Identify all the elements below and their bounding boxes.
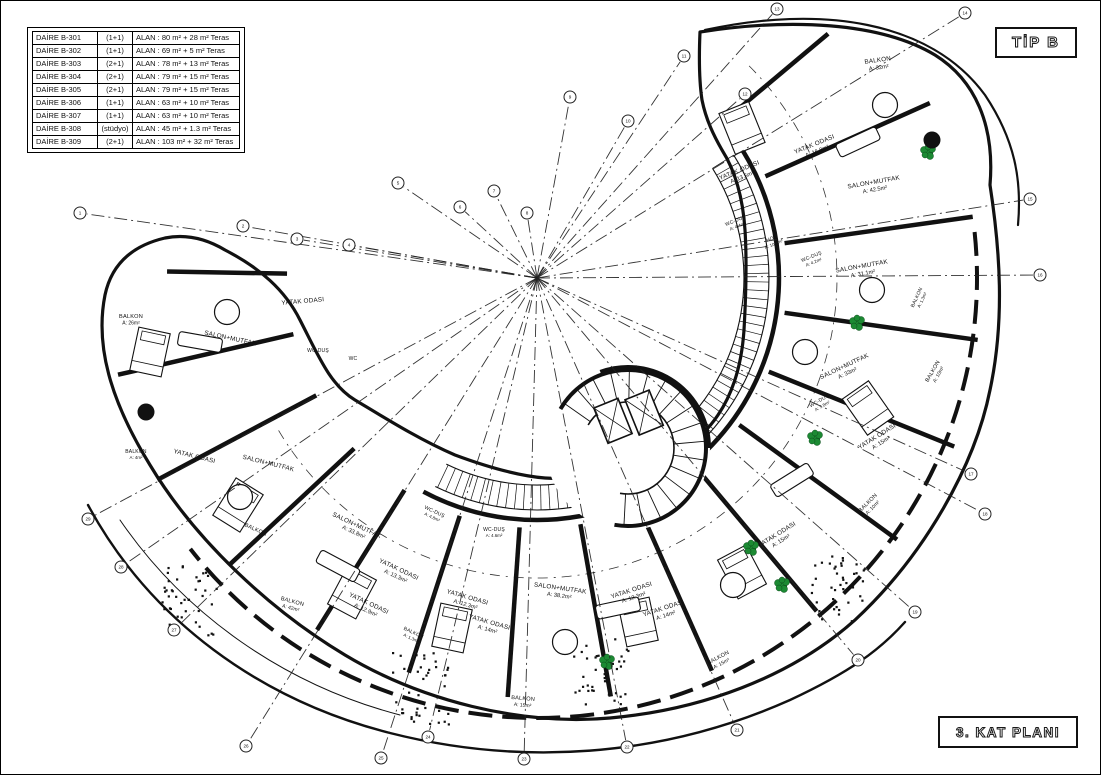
svg-text:A: 4m²: A: 4m² — [130, 455, 143, 460]
axis-marker-label: 16 — [1037, 273, 1043, 278]
table-symbol — [721, 573, 746, 598]
axis-marker-label: 1 — [79, 211, 82, 216]
unit-table-row: DAİRE B-308(stüdyo)ALAN : 45 m² + 1.3 m²… — [33, 123, 240, 136]
table-symbol — [860, 278, 885, 303]
unit-table-cell: (2+1) — [98, 84, 133, 97]
column-dot — [924, 132, 941, 149]
unit-table-cell: DAİRE B-308 — [33, 123, 98, 136]
unit-table-cell: ALAN : 63 m² + 10 m² Teras — [133, 97, 240, 110]
axis-marker-label: 19 — [912, 610, 918, 615]
room-label: BALKONA: 26m² — [119, 314, 143, 327]
axis-marker-label: 4 — [348, 243, 351, 248]
table-symbol — [553, 630, 578, 655]
unit-table-cell: (1+1) — [98, 97, 133, 110]
unit-table-cell: DAİRE B-303 — [33, 58, 98, 71]
unit-table-cell: DAİRE B-304 — [33, 71, 98, 84]
axis-marker-label: 29 — [85, 517, 91, 522]
svg-text:A: 26m²: A: 26m² — [122, 321, 140, 327]
axis-marker-label: 3 — [296, 237, 299, 242]
floor-plan-sheet: BALKONA: 32m²YATAK ODASIA: 13.5m²YATAK O… — [0, 0, 1101, 775]
axis-marker-label: 2 — [242, 224, 245, 229]
unit-table-cell: (2+1) — [98, 71, 133, 84]
room-label: WC-DUŞA: 4.6m² — [483, 527, 505, 538]
table-symbol — [793, 340, 818, 365]
axis-marker-label: 25 — [378, 756, 384, 761]
unit-table-cell: DAİRE B-301 — [33, 32, 98, 45]
unit-table-cell: ALAN : 69 m² + 5 m² Teras — [133, 45, 240, 58]
plan-title-box: 3. KAT PLANI — [938, 716, 1078, 748]
unit-table-cell: DAİRE B-305 — [33, 84, 98, 97]
axis-marker-label: 11 — [682, 54, 687, 59]
axis-marker-label: 17 — [968, 472, 974, 477]
column-dot — [138, 404, 155, 421]
axis-marker-label: 21 — [734, 728, 740, 733]
table-symbol — [228, 485, 253, 510]
svg-text:A: 4.6m²: A: 4.6m² — [486, 533, 503, 538]
axis-line — [537, 127, 624, 278]
axis-marker-label: 27 — [171, 628, 177, 633]
unit-table-cell: (1+1) — [98, 32, 133, 45]
unit-table-row: DAİRE B-302(1+1)ALAN : 69 m² + 5 m² Tera… — [33, 45, 240, 58]
unit-table-cell: (1+1) — [98, 45, 133, 58]
unit-table-row: DAİRE B-309(2+1)ALAN : 103 m² + 32 m² Te… — [33, 136, 240, 149]
axis-marker-label: 5 — [397, 181, 400, 186]
axis-line — [404, 187, 537, 278]
table-symbol — [215, 300, 240, 325]
axis-marker-label: 10 — [625, 119, 631, 124]
room-label: BALKONA: 4m² — [125, 449, 147, 460]
axis-marker-label: 9 — [569, 95, 572, 100]
axis-line — [537, 104, 569, 278]
axis-marker-label: 14 — [962, 11, 968, 16]
axis-marker-label: 18 — [982, 512, 988, 517]
unit-table-cell: ALAN : 78 m² + 13 m² Teras — [133, 58, 240, 71]
axis-marker-label: 12 — [742, 92, 748, 97]
table-symbol — [873, 93, 898, 118]
axis-marker-label: 23 — [521, 757, 527, 762]
axis-marker-label: 26 — [243, 744, 249, 749]
svg-text:BALKON: BALKON — [119, 314, 143, 320]
axis-marker-label: 22 — [624, 745, 630, 750]
svg-text:WC: WC — [349, 356, 358, 362]
unit-table-cell: (stüdyo) — [98, 123, 133, 136]
type-label-box: TİP B — [995, 27, 1077, 58]
unit-table-cell: ALAN : 103 m² + 32 m² Teras — [133, 136, 240, 149]
unit-table-row: DAİRE B-301(1+1)ALAN : 80 m² + 28 m² Ter… — [33, 32, 240, 45]
unit-table-cell: DAİRE B-309 — [33, 136, 98, 149]
unit-table-cell: DAİRE B-306 — [33, 97, 98, 110]
unit-table-cell: ALAN : 63 m² + 10 m² Teras — [133, 110, 240, 123]
axis-marker-label: 20 — [855, 658, 861, 663]
apartment-schedule-table: DAİRE B-301(1+1)ALAN : 80 m² + 28 m² Ter… — [27, 27, 245, 153]
unit-table-row: DAİRE B-307(1+1)ALAN : 63 m² + 10 m² Ter… — [33, 110, 240, 123]
unit-table-cell: (2+1) — [98, 136, 133, 149]
unit-table-row: DAİRE B-306(1+1)ALAN : 63 m² + 10 m² Ter… — [33, 97, 240, 110]
unit-table-cell: ALAN : 79 m² + 15 m² Teras — [133, 71, 240, 84]
unit-table-cell: DAİRE B-302 — [33, 45, 98, 58]
axis-marker-label: 6 — [459, 205, 462, 210]
unit-table-row: DAİRE B-305(2+1)ALAN : 79 m² + 15 m² Ter… — [33, 84, 240, 97]
axis-line — [537, 99, 740, 278]
axis-marker-label: 15 — [1027, 197, 1033, 202]
room-label: WC — [349, 356, 358, 362]
unit-table-cell: (1+1) — [98, 110, 133, 123]
unit-table-row: DAİRE B-303(2+1)ALAN : 78 m² + 13 m² Ter… — [33, 58, 240, 71]
axis-marker-label: 28 — [118, 565, 124, 570]
plan-title: 3. KAT PLANI — [956, 725, 1060, 740]
unit-table-cell: ALAN : 79 m² + 15 m² Teras — [133, 84, 240, 97]
room-label: WC-DUŞ — [307, 348, 329, 354]
central-staircase — [546, 366, 710, 530]
axis-marker-label: 24 — [425, 735, 431, 740]
axis-marker-label: 7 — [493, 189, 496, 194]
unit-table-cell: ALAN : 45 m² + 1.3 m² Teras — [133, 123, 240, 136]
axis-marker-label: 8 — [526, 211, 529, 216]
unit-table-row: DAİRE B-304(2+1)ALAN : 79 m² + 15 m² Ter… — [33, 71, 240, 84]
type-label: TİP B — [1012, 34, 1060, 51]
axis-marker-label: 13 — [774, 7, 780, 12]
axis-line — [356, 246, 537, 278]
unit-table-cell: ALAN : 80 m² + 28 m² Teras — [133, 32, 240, 45]
unit-table-cell: DAİRE B-307 — [33, 110, 98, 123]
svg-text:WC-DUŞ: WC-DUŞ — [307, 348, 329, 354]
axis-line — [465, 212, 537, 278]
unit-table-cell: (2+1) — [98, 58, 133, 71]
